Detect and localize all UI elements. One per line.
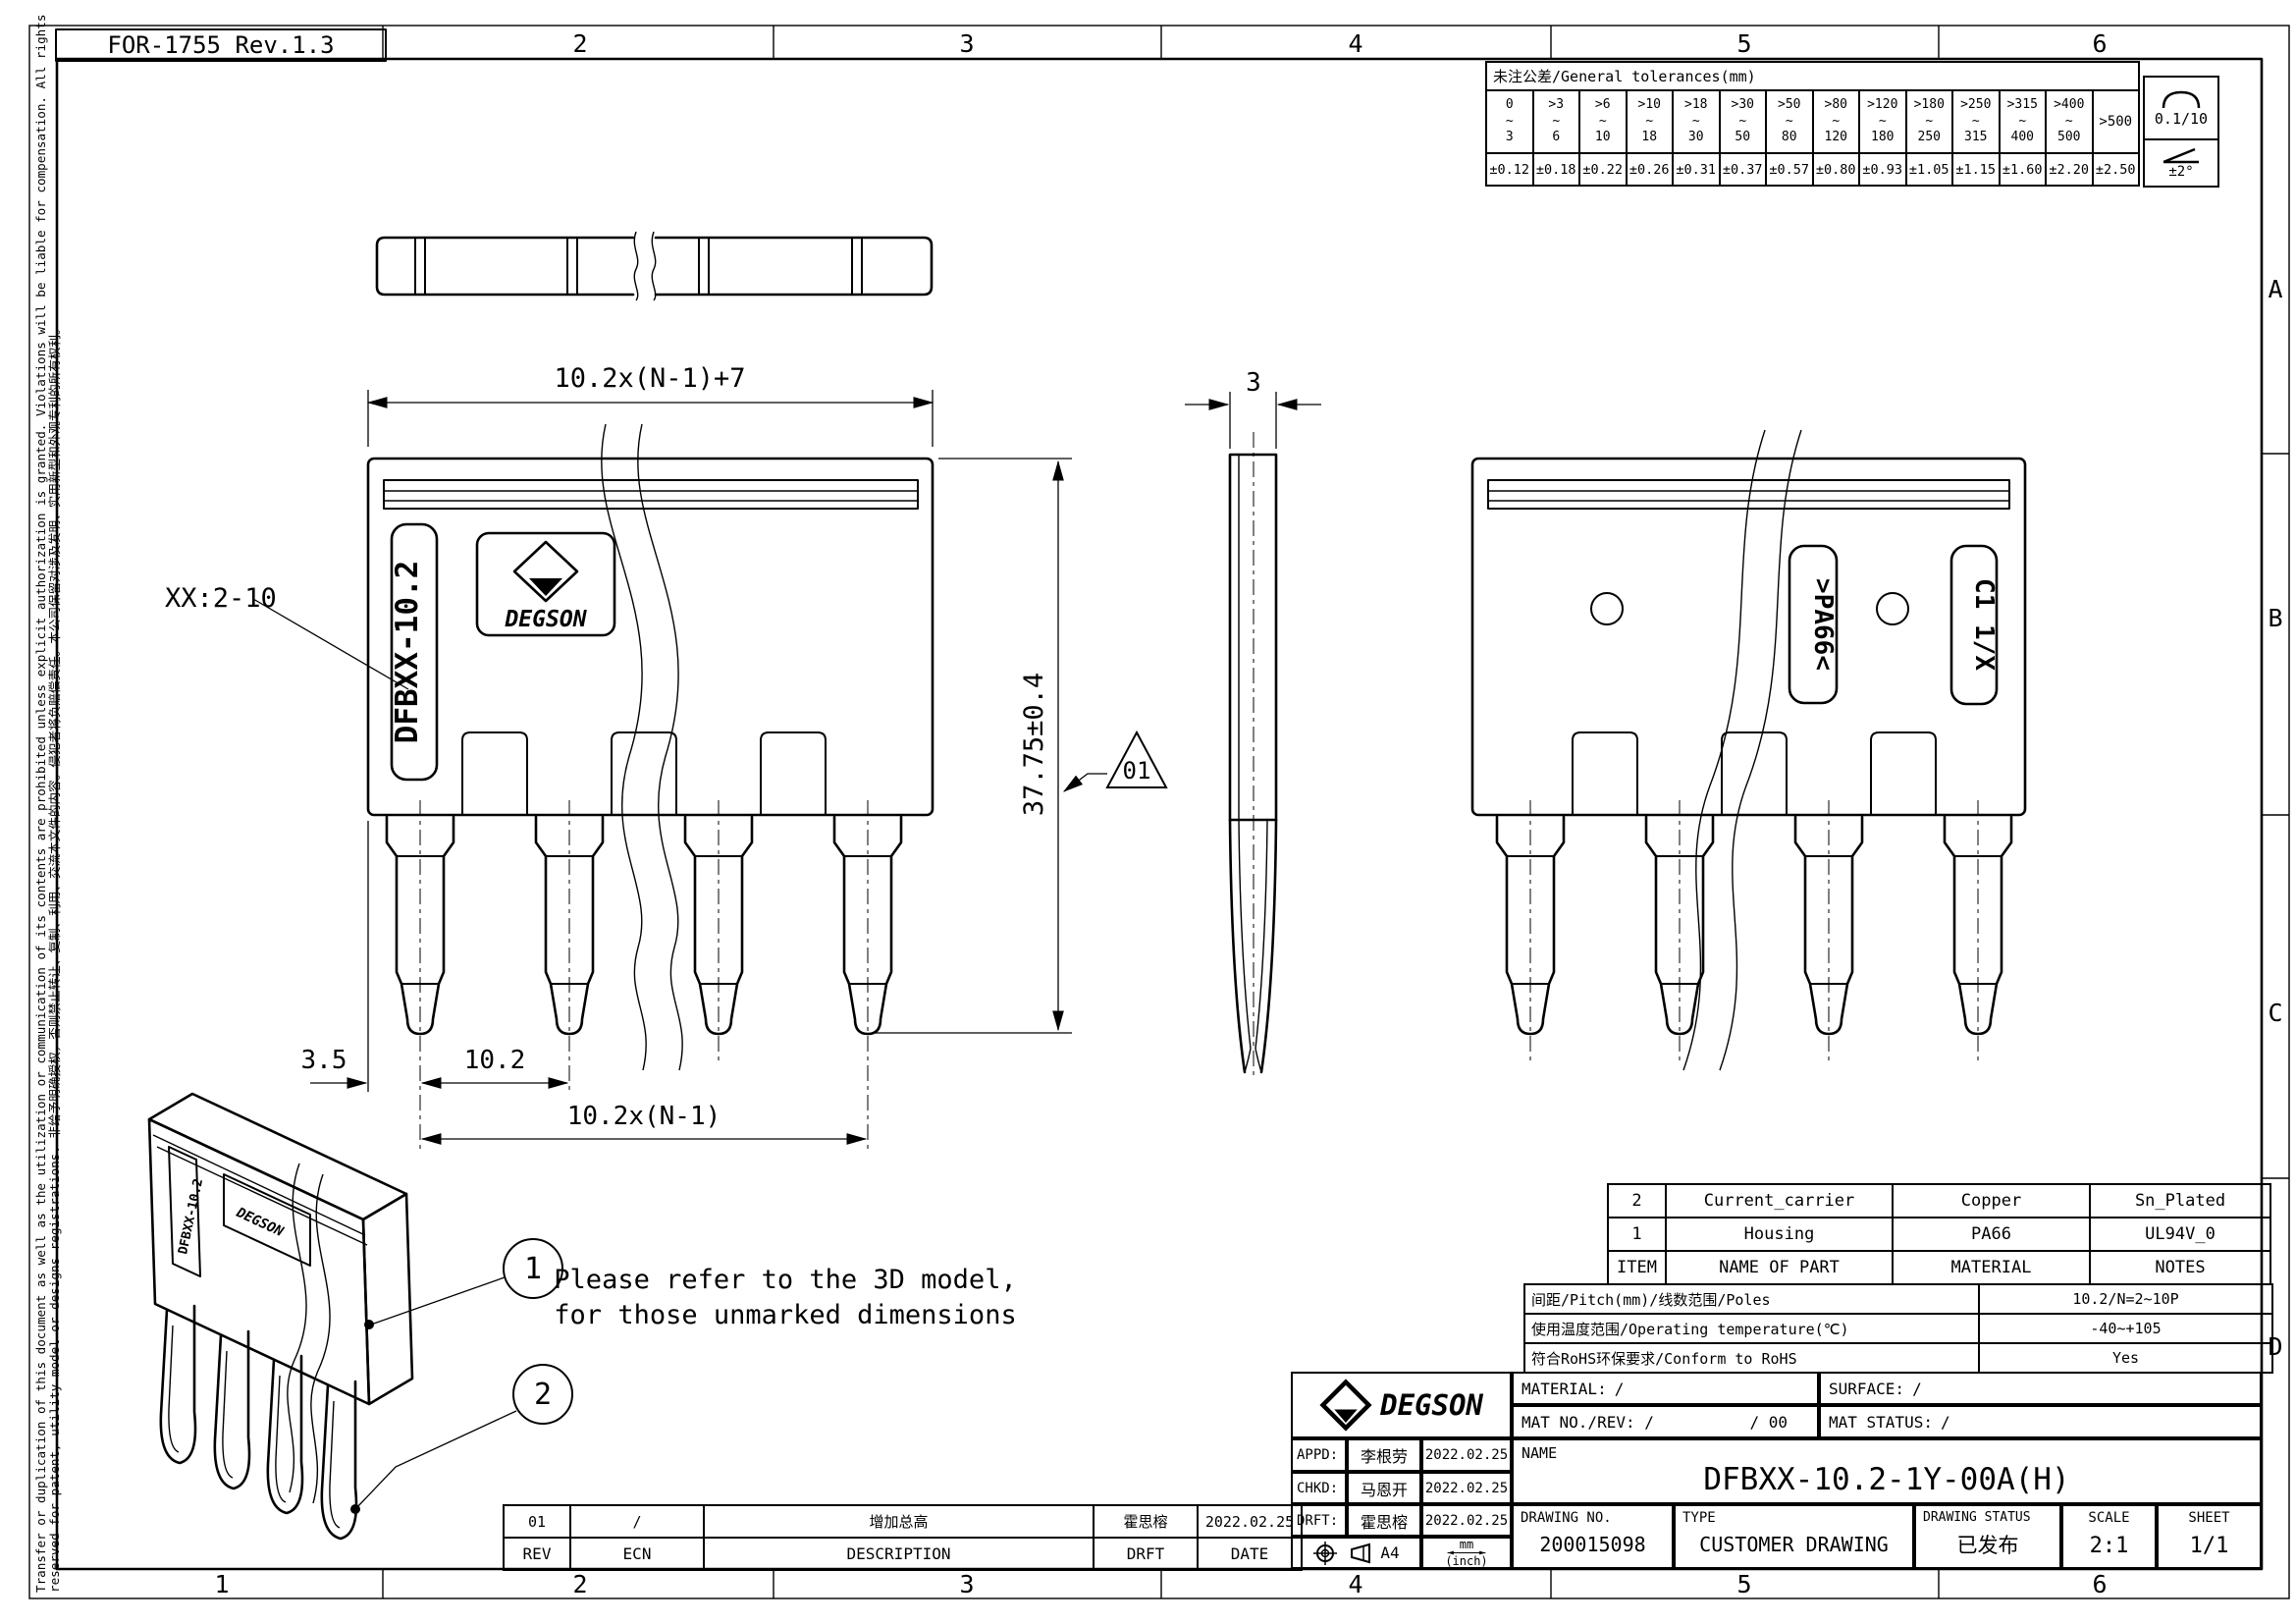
break-line [1720, 430, 1801, 1070]
grid-col-bottom-6: 6 [2092, 1570, 2107, 1598]
grid-row-a: A [2268, 275, 2282, 303]
revision-header-row: REV ECN DESCRIPTION DRFT DATE [504, 1538, 1302, 1570]
revision-flag-number: 01 [1123, 757, 1151, 785]
scale-cell: SCALE 2:1 [2061, 1504, 2157, 1569]
grid-col-bottom-5: 5 [1736, 1570, 1751, 1598]
mat-no-rev-cell: MAT NO./REV: / / 00 [1512, 1405, 1819, 1438]
degson-logo-icon [514, 542, 577, 601]
title-brand-text: DEGSON [1380, 1388, 1483, 1422]
tolerance-table-title: 未注公差/General tolerances(mm) [1486, 62, 2139, 90]
callout-1-number: 1 [524, 1252, 542, 1286]
name-cell: NAME DFBXX-10.2-1Y-00A(H) [1512, 1438, 2262, 1504]
grid-col-top-3: 3 [959, 29, 974, 58]
brand-text: DEGSON [504, 607, 587, 632]
name-label: NAME [1522, 1444, 1557, 1462]
chkd-label-cell: CHKD: [1291, 1472, 1347, 1504]
material-marking-text: >PA66< [1808, 578, 1838, 671]
disclaimer-line-1: Transfer or duplication of this document… [33, 15, 48, 1593]
rear-hole-right [1877, 593, 1908, 624]
grid-col-top-5: 5 [1736, 29, 1751, 58]
parts-row-1: 1 Housing PA66 UL94V_0 [1608, 1218, 2270, 1251]
grid-col-top-6: 6 [2092, 29, 2107, 58]
projection-paper-cell: A4 [1291, 1537, 1421, 1569]
side-view [1230, 432, 1276, 1080]
iso-brand-text: DEGSON [233, 1205, 286, 1241]
sheet-value: 1/1 [2190, 1534, 2229, 1558]
isometric-view: DFBXX-10.2 DEGSON 1 2 [149, 1094, 572, 1539]
type-value: CUSTOMER DRAWING [1699, 1533, 1889, 1556]
dim-height: 37.75±0.4 [1019, 673, 1049, 816]
break-line [602, 424, 646, 1070]
tolerance-last-tol: ±2.50 [2093, 153, 2140, 186]
parts-table: 2 Current_carrier Copper Sn_Plated 1 Hou… [1607, 1183, 2271, 1285]
drft-name-cell: 霍思榕 [1347, 1504, 1421, 1537]
dim-width: 10.2x(N-1)+7 [554, 363, 745, 394]
rear-hole-left [1591, 593, 1623, 624]
front-contacts [387, 817, 901, 1034]
title-logo-cell: DEGSON [1291, 1372, 1512, 1438]
break-line [1683, 430, 1765, 1070]
rear-view: >PA66< C1 1/X [1472, 430, 2025, 1070]
grid-col-bottom-3: 3 [959, 1570, 974, 1598]
grid-col-top-2: 2 [572, 29, 587, 58]
spec-table: 间距/Pitch(mm)/线数范围/Poles 10.2/N=2~10P 使用温… [1523, 1283, 2273, 1374]
type-cell: TYPE CUSTOMER DRAWING [1674, 1504, 1914, 1569]
form-code: FOR-1755 Rev.1.3 [107, 31, 334, 59]
paper-size: A4 [1380, 1543, 1399, 1562]
drawing-status-cell: DRAWING STATUS 已发布 [1914, 1504, 2061, 1569]
appd-label-cell: APPD: [1291, 1438, 1347, 1472]
grid-row-c: C [2268, 999, 2282, 1027]
grid-col-bottom-4: 4 [1348, 1570, 1362, 1598]
angle-icon [2160, 146, 2203, 164]
top-view [377, 232, 932, 300]
angle-tolerance-cell: ±2° [2143, 138, 2219, 188]
rear-body [1472, 459, 2025, 815]
parts-row-2: 2 Current_carrier Copper Sn_Plated [1608, 1184, 2270, 1218]
break-line [652, 232, 655, 300]
drawing-no-value: 200015098 [1539, 1533, 1645, 1556]
units-inch: (inch) [1445, 1555, 1487, 1567]
grid-col-bottom-2: 2 [572, 1570, 587, 1598]
flatness-value: 0.1/10 [2155, 110, 2208, 128]
note-line-2: for those unmarked dimensions [554, 1300, 1016, 1330]
note-line-1: Please refer to the 3D model, [554, 1265, 1016, 1295]
chkd-date-cell: 2022.02.25 [1421, 1472, 1512, 1504]
grid-row-b: B [2268, 604, 2282, 632]
cavity-marking-text: C1 1/X [1969, 578, 1999, 671]
dim-span: 10.2x(N-1) [567, 1102, 721, 1131]
scale-value: 2:1 [2090, 1534, 2129, 1558]
front-view: DFBXX-10.2 DEGSON [368, 424, 933, 1154]
appd-date-cell: 2022.02.25 [1421, 1438, 1512, 1472]
drawing-sheet: FOR-1755 Rev.1.3 2 3 4 5 6 1 2 3 4 5 6 A… [0, 0, 2296, 1624]
first-angle-projection-icon [1312, 1541, 1373, 1566]
grid-col-top-4: 4 [1348, 29, 1362, 58]
flatness-tolerance-cell: 0.1/10 [2143, 76, 2219, 140]
chkd-name-cell: 马恩开 [1347, 1472, 1421, 1504]
spec-row-temperature: 使用温度范围/Operating temperature(℃) -40~+105 [1524, 1314, 2272, 1343]
appd-name-cell: 李根劳 [1347, 1438, 1421, 1472]
disclaimer-line-2: reserved for patent, utility model or de… [47, 322, 62, 1593]
parts-header-row: ITEM NAME OF PART MATERIAL NOTES [1608, 1251, 2270, 1284]
drft-date-cell: 2022.02.25 [1421, 1504, 1512, 1537]
material-cell: MATERIAL:/ [1512, 1372, 1819, 1405]
degson-logo-icon [1319, 1379, 1372, 1432]
iso-part-marking-text: DFBXX-10.2 [176, 1177, 206, 1256]
spec-row-rohs: 符合RoHS环保要求/Conform to RoHS Yes [1524, 1343, 2272, 1373]
surface-cell: SURFACE:/ [1819, 1372, 2262, 1405]
revision-table: 01 / 增加总高 霍思榕 2022.02.25 REV ECN DESCRIP… [503, 1504, 1303, 1571]
units-cell: mm (inch) [1421, 1537, 1512, 1569]
spec-row-pitch: 间距/Pitch(mm)/线数范围/Poles 10.2/N=2~10P [1524, 1284, 2272, 1314]
units-mm: mm [1460, 1539, 1473, 1550]
sheet-cell: SHEET 1/1 [2157, 1504, 2262, 1569]
drawing-no-cell: DRAWING NO. 200015098 [1512, 1504, 1674, 1569]
callout-2-number: 2 [534, 1378, 552, 1412]
grid-col-bottom-1: 1 [214, 1570, 229, 1598]
drawing-status-value: 已发布 [1957, 1530, 2019, 1559]
tolerance-table: 未注公差/General tolerances(mm) 0~3 >3~6 >6~… [1485, 61, 2140, 187]
part-marking-text: DFBXX-10.2 [390, 561, 425, 744]
mat-status-cell: MAT STATUS:/ [1819, 1405, 2262, 1438]
break-line [634, 232, 637, 300]
poles-note: XX:2-10 [165, 583, 277, 614]
flatness-icon [2160, 88, 2203, 110]
dim-thickness: 3 [1246, 368, 1261, 398]
tolerance-last-range: >500 [2093, 90, 2140, 153]
dim-pitch: 10.2 [464, 1046, 526, 1075]
dim-offset: 3.5 [301, 1046, 347, 1075]
revision-row: 01 / 增加总高 霍思榕 2022.02.25 [504, 1505, 1302, 1538]
part-name: DFBXX-10.2-1Y-00A(H) [1703, 1462, 2069, 1497]
front-body [368, 459, 933, 815]
angle-value: ±2° [2168, 164, 2193, 180]
front-top-slot [384, 480, 918, 509]
rear-contacts [1497, 817, 2011, 1034]
